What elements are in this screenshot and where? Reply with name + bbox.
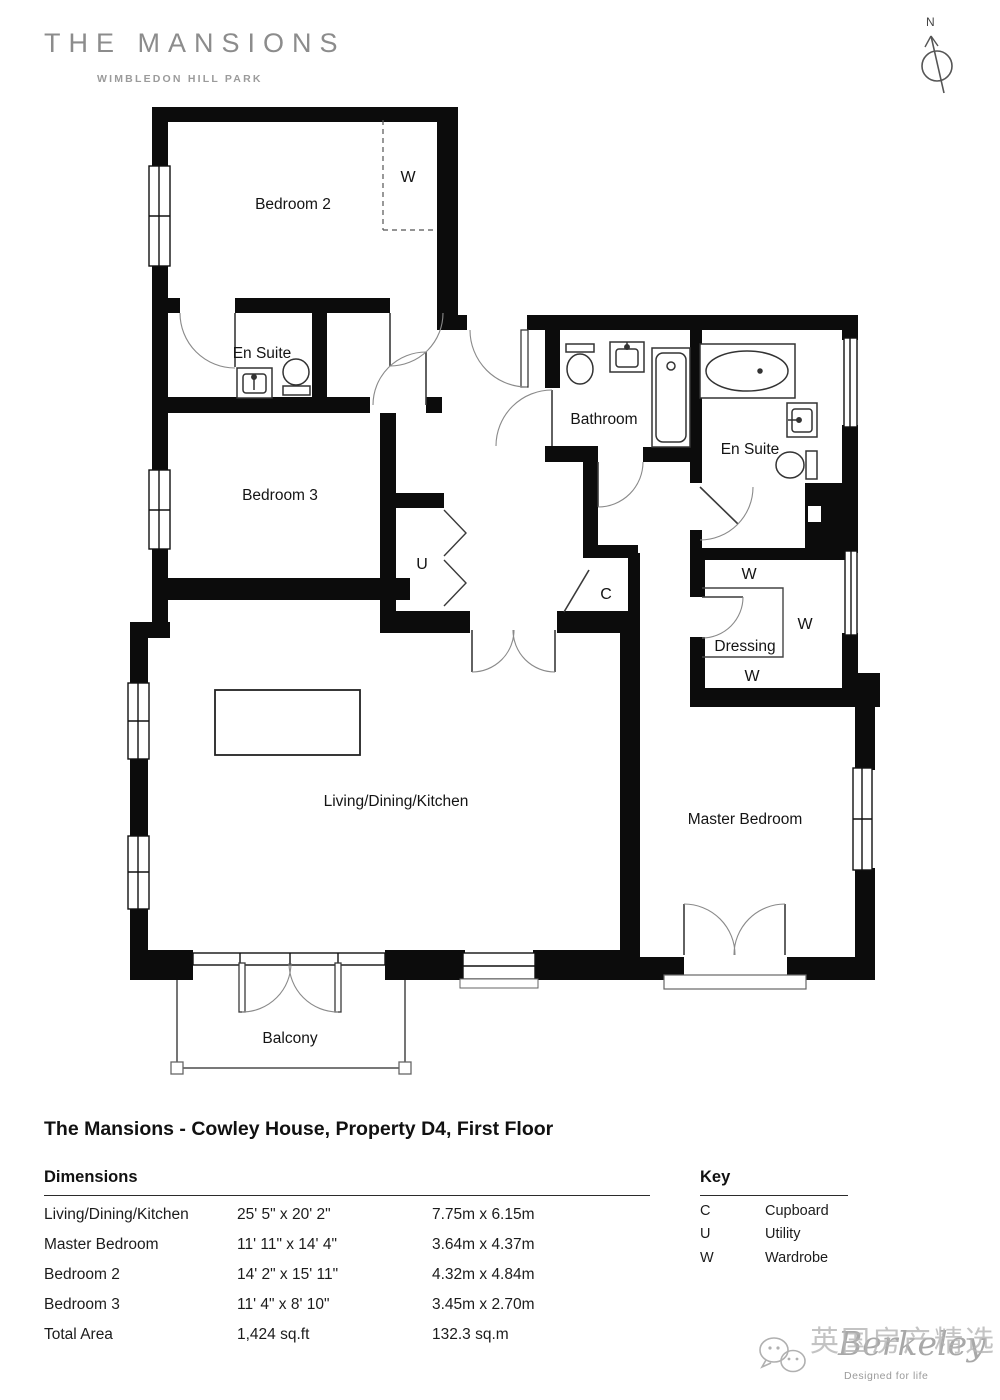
key-row: W Wardrobe: [700, 1246, 848, 1270]
dimensions-heading: Dimensions: [44, 1168, 650, 1196]
bifold-doors-utility: [444, 510, 466, 606]
dim-metric: 132.3 sq.m: [432, 1326, 650, 1344]
key-table: Key C Cupboard U Utility W Wardrobe: [700, 1168, 848, 1270]
sink-master-ensuite: [787, 403, 817, 437]
window-bedroom3: [149, 470, 170, 549]
dim-imperial: 11' 11" x 14' 4": [237, 1236, 432, 1254]
label-bedroom3: Bedroom 3: [242, 487, 318, 504]
berkeley-tagline: Designed for life: [844, 1370, 928, 1382]
marker-wardrobe-dressing-top: W: [741, 566, 757, 583]
kitchen-island: [215, 690, 360, 755]
dim-imperial: 25' 5" x 20' 2": [237, 1206, 432, 1224]
dim-room: Master Bedroom: [44, 1236, 237, 1254]
key-label: Wardrobe: [765, 1250, 848, 1266]
toilet-ensuite2: [283, 359, 310, 395]
key-abbr: U: [700, 1226, 765, 1242]
window-bedroom2: [149, 166, 170, 266]
marker-wardrobe-dressing-bottom: W: [744, 668, 760, 685]
key-rows: C Cupboard U Utility W Wardrobe: [700, 1199, 848, 1270]
table-row: Total Area 1,424 sq.ft 132.3 sq.m: [44, 1320, 650, 1350]
windows: [128, 166, 872, 988]
label-dressing: Dressing: [714, 638, 775, 655]
window-dressing-right: [845, 551, 857, 635]
table-row: Master Bedroom 11' 11" x 14' 4" 3.64m x …: [44, 1230, 650, 1260]
key-abbr: C: [700, 1203, 765, 1219]
window-living-left-2: [128, 836, 149, 909]
table-row: Bedroom 2 14' 2" x 15' 11" 4.32m x 4.84m: [44, 1260, 650, 1290]
page-title: The Mansions - Cowley House, Property D4…: [44, 1118, 553, 1141]
toilet-bathroom: [566, 344, 594, 384]
dim-metric: 4.32m x 4.84m: [432, 1266, 650, 1284]
key-label: Cupboard: [765, 1203, 848, 1219]
dimensions-table: Dimensions Living/Dining/Kitchen 25' 5" …: [44, 1168, 650, 1350]
balcony-outline: [171, 980, 411, 1074]
label-bedroom2: Bedroom 2: [255, 196, 331, 213]
sink-ensuite2: [237, 368, 272, 398]
dim-metric: 3.45m x 2.70m: [432, 1296, 650, 1314]
label-master: Master Bedroom: [688, 811, 803, 828]
key-row: C Cupboard: [700, 1199, 848, 1223]
dim-imperial: 14' 2" x 15' 11": [237, 1266, 432, 1284]
dim-room: Bedroom 2: [44, 1266, 237, 1284]
wechat-icon: [752, 1328, 814, 1386]
bath-master-ensuite: [700, 344, 795, 398]
window-living-bottom: [460, 953, 538, 988]
walls: [130, 107, 880, 980]
watermark: Berkeley 英国房产精选 Designed for life: [752, 1318, 1000, 1398]
marker-wardrobe-bedroom2: W: [400, 169, 416, 186]
duct-notch: [808, 506, 821, 522]
label-living: Living/Dining/Kitchen: [324, 793, 469, 810]
key-label: Utility: [765, 1226, 848, 1242]
dim-room: Bedroom 3: [44, 1296, 237, 1314]
label-balcony: Balcony: [262, 1030, 317, 1047]
dim-room: Total Area: [44, 1326, 237, 1344]
key-heading: Key: [700, 1168, 848, 1196]
window-living-left-1: [128, 683, 149, 759]
floorplan-page: THE MANSIONS WIMBLEDON HILL PARK N: [0, 0, 1000, 1400]
key-row: U Utility: [700, 1223, 848, 1247]
chinese-overlay-text: 英国房产精选: [810, 1318, 996, 1360]
dim-metric: 3.64m x 4.37m: [432, 1236, 650, 1254]
shower-bathroom: [652, 348, 690, 447]
floorplan-drawing: N: [0, 0, 1000, 1115]
toilet-master-ensuite: [776, 451, 817, 479]
marker-cupboard: C: [600, 586, 612, 603]
key-abbr: W: [700, 1250, 765, 1266]
marker-wardrobe-dressing-right: W: [797, 616, 813, 633]
north-compass-icon: [922, 36, 952, 93]
dim-metric: 7.75m x 6.15m: [432, 1206, 650, 1224]
dim-imperial: 11' 4" x 8' 10": [237, 1296, 432, 1314]
label-bathroom: Bathroom: [570, 411, 637, 428]
window-master-right: [853, 768, 872, 870]
table-row: Living/Dining/Kitchen 25' 5" x 20' 2" 7.…: [44, 1200, 650, 1230]
marker-utility: U: [416, 556, 428, 573]
sink-bathroom: [610, 342, 644, 372]
dim-imperial: 1,424 sq.ft: [237, 1326, 432, 1344]
master-door-step: [664, 975, 806, 989]
dimensions-rows: Living/Dining/Kitchen 25' 5" x 20' 2" 7.…: [44, 1200, 650, 1350]
compass-north-label: N: [926, 15, 935, 29]
label-master-ensuite: En Suite: [721, 441, 780, 458]
dim-room: Living/Dining/Kitchen: [44, 1206, 237, 1224]
label-ensuite2: En Suite: [233, 345, 292, 362]
window-ensuite-right: [844, 338, 857, 427]
fixtures: [215, 342, 817, 989]
table-row: Bedroom 3 11' 4" x 8' 10" 3.45m x 2.70m: [44, 1290, 650, 1320]
